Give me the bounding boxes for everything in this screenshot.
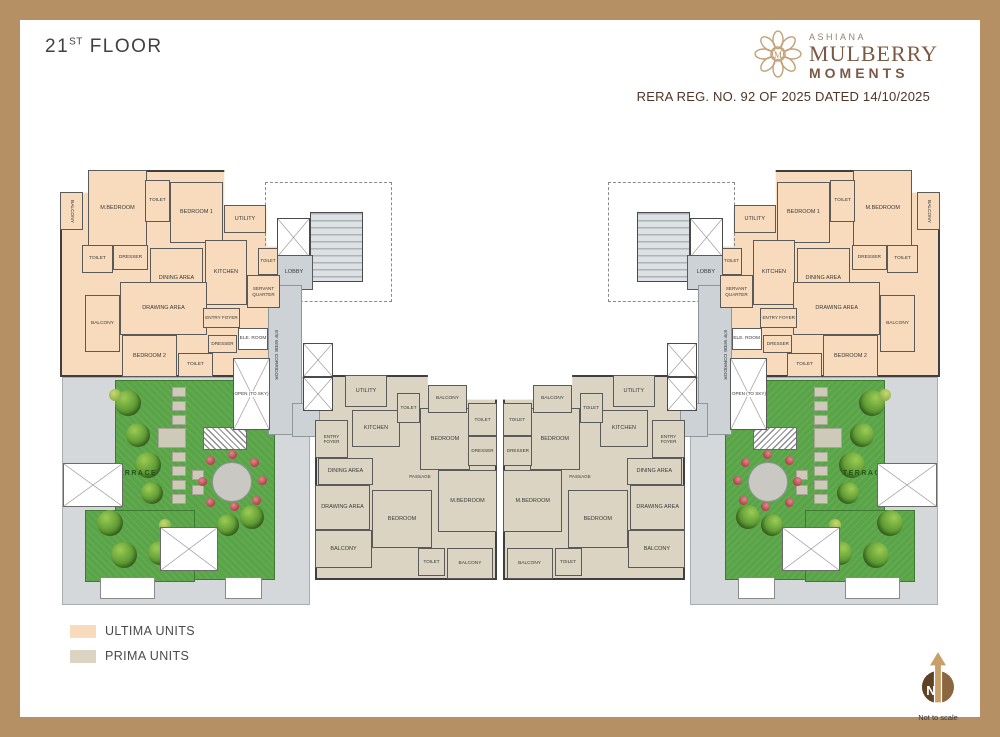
prima-balcony: BALCONY bbox=[533, 385, 572, 413]
prima-balcony: BALCONY bbox=[507, 548, 553, 579]
electrical-room: ELE. ROOM bbox=[238, 328, 268, 350]
corridor-label: 8'/9' WIDE CORRIDOR bbox=[273, 330, 297, 380]
tree bbox=[97, 510, 123, 536]
flower-bush bbox=[230, 502, 239, 511]
stepping-stone bbox=[172, 387, 186, 397]
legend-item-prima: PRIMA UNITS bbox=[70, 649, 195, 663]
ultima-legend-label: ULTIMA UNITS bbox=[105, 624, 195, 638]
stepping-stone bbox=[814, 401, 828, 411]
open-to-sky-shaft: OPEN (TO SKY) bbox=[233, 358, 270, 430]
service-box bbox=[738, 577, 775, 599]
electrical-room: ELE. ROOM bbox=[732, 328, 762, 350]
ultima-toilet: TOILET bbox=[830, 180, 855, 222]
flower-bush bbox=[761, 502, 770, 511]
stepping-stone bbox=[172, 452, 186, 462]
flower-bush bbox=[206, 456, 215, 465]
stepping-stone bbox=[172, 494, 186, 504]
tree bbox=[850, 423, 874, 447]
prima-balcony: BALCONY bbox=[315, 530, 372, 568]
tree bbox=[863, 542, 889, 568]
stepping-stone bbox=[796, 485, 808, 495]
ultima-kitchen: KITCHEN bbox=[753, 240, 795, 305]
ultima-master-bedroom: M.BEDROOM bbox=[853, 170, 912, 247]
ultima-dresser: DRESSER bbox=[208, 335, 237, 353]
tree bbox=[111, 542, 137, 568]
terrace-patio bbox=[212, 462, 252, 502]
ultima-bedroom-2: BEDROOM 2 bbox=[823, 335, 878, 377]
stepping-stone bbox=[814, 466, 828, 476]
ramp-hatch bbox=[203, 427, 247, 450]
stretcher-lift-shaft bbox=[667, 377, 697, 411]
stretcher-lift-shaft bbox=[303, 343, 333, 377]
ultima-drawing-area: DRAWING AREA bbox=[793, 282, 880, 335]
staircase bbox=[637, 212, 690, 282]
ultima-toilet: TOILET bbox=[258, 248, 278, 275]
ultima-toilet: TOILET bbox=[178, 353, 213, 377]
rera-registration-line: RERA REG. NO. 92 OF 2025 DATED 14/10/202… bbox=[560, 89, 930, 104]
prima-dining-area: DINING AREA bbox=[627, 458, 682, 485]
ultima-bedroom-1: BEDROOM 1 bbox=[170, 182, 223, 243]
flower-bush bbox=[785, 456, 794, 465]
prima-drawing-area: DRAWING AREA bbox=[630, 485, 685, 530]
north-indicator: N Not to scale bbox=[912, 650, 964, 722]
ramp-hatch bbox=[753, 427, 797, 450]
stepping-stone bbox=[814, 387, 828, 397]
tree bbox=[217, 514, 239, 536]
stepping-stone bbox=[172, 415, 186, 425]
stepping-stone bbox=[814, 494, 828, 504]
tree bbox=[877, 510, 903, 536]
open-to-sky-shaft: OPEN (TO SKY) bbox=[730, 358, 767, 430]
flower-bush bbox=[206, 498, 215, 507]
prima-bedroom: BEDROOM bbox=[568, 490, 628, 548]
stepping-stone bbox=[158, 428, 186, 448]
flower-bush bbox=[252, 496, 261, 505]
flower-bush bbox=[741, 458, 750, 467]
logo-monogram: M bbox=[774, 50, 782, 60]
prima-balcony: BALCONY bbox=[628, 530, 685, 568]
ultima-dresser: DRESSER bbox=[852, 245, 887, 270]
flower-bush bbox=[785, 498, 794, 507]
lift-shaft bbox=[690, 218, 723, 257]
logo-name-mulberry: MULBERRY bbox=[809, 43, 938, 65]
ultima-balcony: BALCONY bbox=[85, 295, 120, 352]
legend-item-ultima: ULTIMA UNITS bbox=[70, 624, 195, 638]
mulberry-flower-icon: M bbox=[753, 28, 803, 85]
ultima-servant-quarter: SERVANT QUARTER bbox=[720, 275, 753, 308]
logo-name-moments: MOMENTS bbox=[809, 65, 938, 81]
prima-toilet: TOILET bbox=[555, 548, 582, 576]
ultima-balcony: BALCONY bbox=[60, 192, 83, 230]
ultima-bedroom-1: BEDROOM 1 bbox=[777, 182, 830, 243]
prima-passage-label: PASSAGE bbox=[400, 474, 440, 479]
prima-color-swatch bbox=[70, 650, 96, 663]
prima-master-bedroom: M.BEDROOM bbox=[503, 470, 562, 532]
stepping-stone bbox=[814, 480, 828, 490]
flower-bush bbox=[250, 458, 259, 467]
ultima-master-bedroom: M.BEDROOM bbox=[88, 170, 147, 247]
floor-plan-sheet: 21ST FLOOR M ASHIANA MULBERRY bbox=[0, 0, 1000, 737]
page-title: 21ST FLOOR bbox=[45, 36, 163, 58]
prima-kitchen: KITCHEN bbox=[352, 410, 400, 447]
flower-bush bbox=[733, 476, 742, 485]
ultima-balcony: BALCONY bbox=[880, 295, 915, 352]
lift-shaft bbox=[277, 218, 310, 257]
prima-toilet: TOILET bbox=[503, 403, 532, 436]
ultima-toilet: TOILET bbox=[787, 353, 822, 377]
legend: ULTIMA UNITS PRIMA UNITS bbox=[70, 624, 195, 674]
service-box bbox=[225, 577, 262, 599]
stepping-stone bbox=[814, 452, 828, 462]
corridor-label: 8'/9' WIDE CORRIDOR bbox=[703, 330, 727, 380]
prima-legend-label: PRIMA UNITS bbox=[105, 649, 189, 663]
prima-master-bedroom: M.BEDROOM bbox=[438, 470, 497, 532]
not-to-scale-note: Not to scale bbox=[912, 713, 964, 722]
logo-text: ASHIANA MULBERRY MOMENTS bbox=[809, 32, 938, 81]
prima-toilet: TOILET bbox=[418, 548, 445, 576]
stepping-stone bbox=[814, 415, 828, 425]
stretcher-lift-shaft bbox=[303, 377, 333, 411]
plan-right-half: TERRACE LOBBY 8'/9' WIDE CORRIDOR ELE. R… bbox=[500, 165, 940, 610]
prima-bedroom: BEDROOM bbox=[420, 408, 470, 470]
ultima-servant-quarter: SERVANT QUARTER bbox=[247, 275, 280, 308]
north-letter: N bbox=[926, 683, 935, 698]
ultima-drawing-area: DRAWING AREA bbox=[120, 282, 207, 335]
ultima-kitchen: KITCHEN bbox=[205, 240, 247, 305]
ultima-bedroom-2: BEDROOM 2 bbox=[122, 335, 177, 377]
tree bbox=[736, 505, 760, 529]
prima-drawing-area: DRAWING AREA bbox=[315, 485, 370, 530]
ultima-toilet: TOILET bbox=[82, 245, 113, 273]
flower-bush bbox=[198, 477, 207, 486]
service-box bbox=[845, 577, 900, 599]
lift-shaft bbox=[63, 463, 123, 507]
floor-plan: TERRACE LOBBY 8'/9' WIDE CORRIDOR ELE. R… bbox=[60, 165, 940, 610]
flower-bush bbox=[739, 496, 748, 505]
prima-toilet: TOILET bbox=[580, 393, 603, 423]
tree bbox=[240, 505, 264, 529]
prima-passage-label: PASSAGE bbox=[560, 474, 600, 479]
floor-number: 21 bbox=[45, 36, 69, 57]
prima-kitchen: KITCHEN bbox=[600, 410, 648, 447]
prima-dresser: DRESSER bbox=[503, 436, 532, 466]
flower-bush bbox=[228, 450, 237, 459]
flower-bush bbox=[258, 476, 267, 485]
prima-toilet: TOILET bbox=[468, 403, 497, 436]
ultima-dresser: DRESSER bbox=[113, 245, 148, 270]
tree bbox=[837, 482, 859, 504]
ultima-color-swatch bbox=[70, 625, 96, 638]
stepping-stone bbox=[172, 401, 186, 411]
tree bbox=[761, 514, 783, 536]
prima-utility: UTILITY bbox=[613, 375, 655, 407]
ultima-utility: UTILITY bbox=[224, 205, 266, 233]
prima-utility: UTILITY bbox=[345, 375, 387, 407]
ultima-entry-foyer: ENTRY FOYER bbox=[760, 308, 797, 328]
shrub bbox=[879, 389, 891, 401]
ultima-toilet: TOILET bbox=[887, 245, 918, 273]
floor-word: FLOOR bbox=[83, 36, 163, 57]
terrace-patio bbox=[748, 462, 788, 502]
prima-toilet: TOILET bbox=[397, 393, 420, 423]
ultima-entry-foyer: ENTRY FOYER bbox=[203, 308, 240, 328]
ultima-balcony: BALCONY bbox=[917, 192, 940, 230]
brand-logo: M ASHIANA MULBERRY MOMENTS bbox=[753, 28, 938, 85]
staircase bbox=[310, 212, 363, 282]
service-box bbox=[100, 577, 155, 599]
prima-entry-foyer: ENTRY FOYER bbox=[652, 420, 685, 458]
prima-bedroom: BEDROOM bbox=[372, 490, 432, 548]
prima-balcony: BALCONY bbox=[447, 548, 493, 579]
stretcher-lift-shaft bbox=[667, 343, 697, 377]
north-arrow-icon: N bbox=[916, 695, 960, 712]
prima-dresser: DRESSER bbox=[468, 436, 497, 466]
ultima-toilet: TOILET bbox=[145, 180, 170, 222]
stepping-stone bbox=[814, 428, 842, 448]
flower-bush bbox=[763, 450, 772, 459]
stepping-stone bbox=[172, 466, 186, 476]
prima-dining-area: DINING AREA bbox=[318, 458, 373, 485]
stepping-stone bbox=[192, 485, 204, 495]
lift-shaft bbox=[160, 527, 218, 571]
prima-balcony: BALCONY bbox=[428, 385, 467, 413]
ultima-utility: UTILITY bbox=[734, 205, 776, 233]
ultima-toilet: TOILET bbox=[722, 248, 742, 275]
lift-shaft bbox=[877, 463, 937, 507]
plan-left-half: TERRACE LOBBY 8'/9' WIDE CORRIDOR ELE. R… bbox=[60, 165, 500, 610]
lift-shaft bbox=[782, 527, 840, 571]
shrub bbox=[109, 389, 121, 401]
floor-ordinal: ST bbox=[69, 37, 83, 48]
tree bbox=[141, 482, 163, 504]
ultima-dresser: DRESSER bbox=[763, 335, 792, 353]
prima-bedroom: BEDROOM bbox=[530, 408, 580, 470]
prima-entry-foyer: ENTRY FOYER bbox=[315, 420, 348, 458]
tree bbox=[126, 423, 150, 447]
flower-bush bbox=[793, 477, 802, 486]
stepping-stone bbox=[172, 480, 186, 490]
